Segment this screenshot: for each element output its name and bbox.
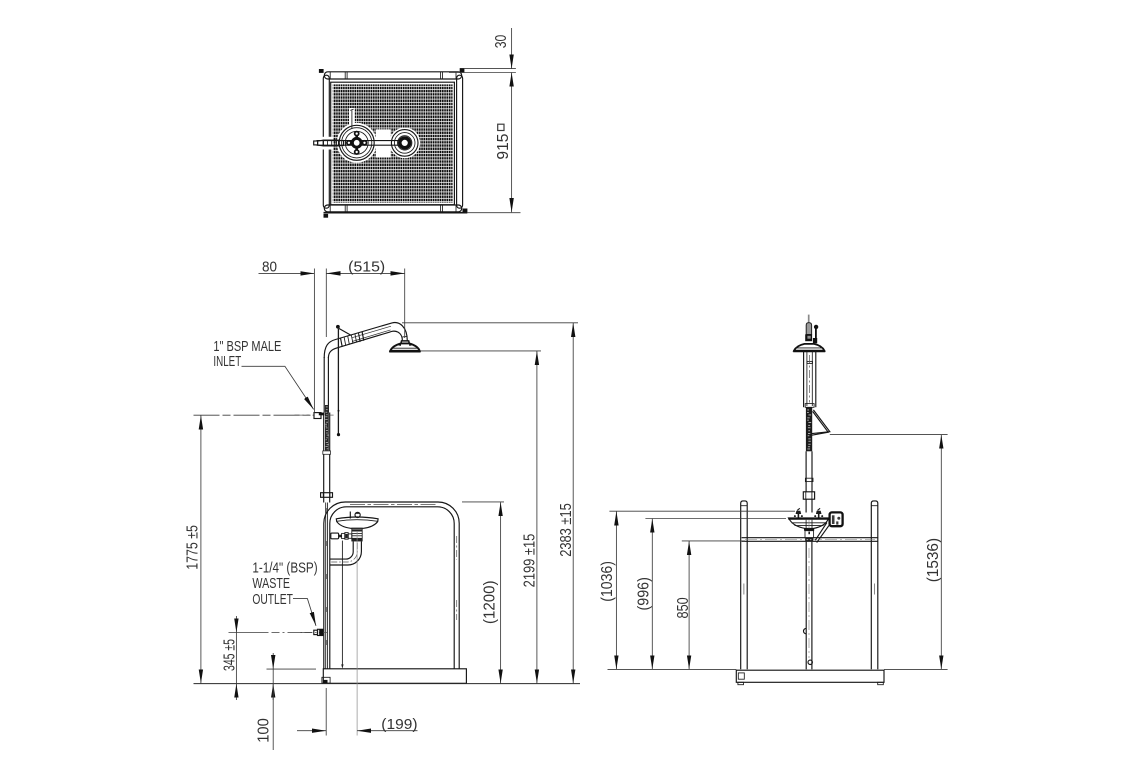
- svg-text:1775 ±5: 1775 ±5: [185, 525, 202, 570]
- svg-text:(1200): (1200): [482, 580, 499, 624]
- svg-text:2383 ±15: 2383 ±15: [558, 503, 575, 557]
- svg-text:(1036): (1036): [599, 561, 616, 602]
- svg-text:OUTLET: OUTLET: [252, 591, 293, 608]
- svg-text:(1536): (1536): [925, 538, 942, 582]
- svg-text:30: 30: [493, 35, 510, 49]
- svg-text:80: 80: [262, 258, 277, 275]
- svg-text:850: 850: [675, 597, 692, 618]
- svg-text:100: 100: [255, 718, 272, 743]
- svg-text:INLET: INLET: [213, 353, 241, 370]
- svg-text:(996): (996): [636, 577, 653, 610]
- svg-text:WASTE: WASTE: [252, 575, 290, 592]
- svg-text:2199 ±15: 2199 ±15: [521, 534, 538, 588]
- svg-text:345 ±5: 345 ±5: [222, 639, 239, 671]
- svg-text:(515): (515): [348, 258, 385, 275]
- svg-text:(199): (199): [381, 716, 417, 733]
- svg-text:915: 915: [495, 134, 512, 160]
